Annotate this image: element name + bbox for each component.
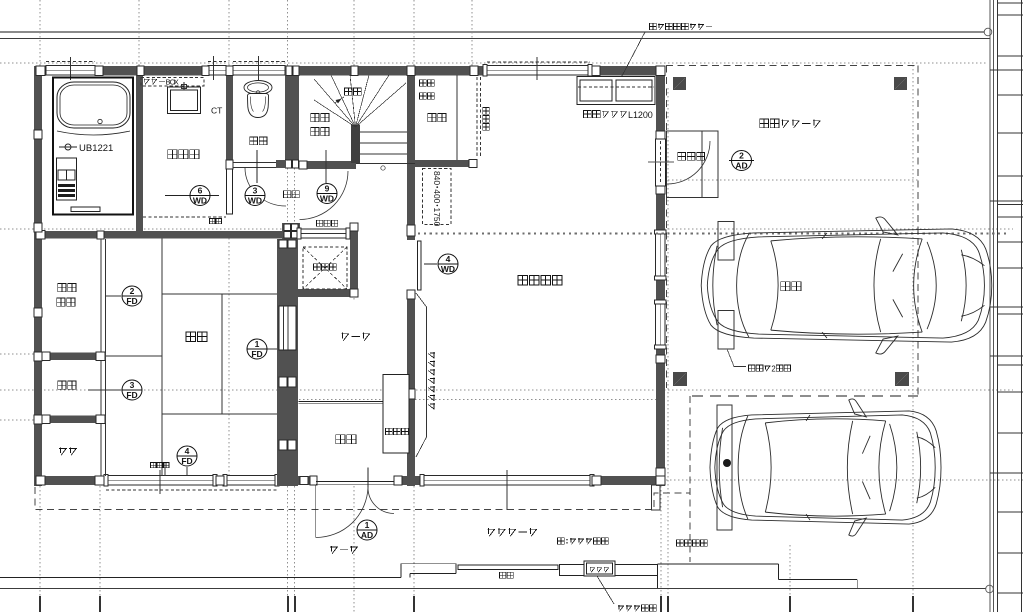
svg-text:UB1221: UB1221 xyxy=(79,143,113,154)
svg-text:WD: WD xyxy=(441,264,455,274)
svg-text:AD: AD xyxy=(361,530,373,540)
svg-text:3: 3 xyxy=(253,186,258,196)
svg-text:FD: FD xyxy=(251,349,262,359)
svg-text:4: 4 xyxy=(446,254,451,264)
svg-text:FD: FD xyxy=(126,296,137,306)
svg-text:AD: AD xyxy=(735,161,747,171)
svg-text:0: 0 xyxy=(432,222,442,227)
svg-text:2: 2 xyxy=(771,365,775,374)
svg-text:9: 9 xyxy=(325,184,330,194)
svg-text:0: 0 xyxy=(648,110,653,120)
svg-text:4: 4 xyxy=(185,446,190,456)
svg-text:FD: FD xyxy=(126,390,137,400)
svg-text:0: 0 xyxy=(432,180,442,185)
svg-text:0: 0 xyxy=(432,199,442,204)
svg-text:WD: WD xyxy=(193,196,207,206)
svg-text:FD: FD xyxy=(181,456,192,466)
svg-text:WD: WD xyxy=(320,194,334,204)
svg-text:3: 3 xyxy=(130,380,135,390)
svg-text:1: 1 xyxy=(255,339,260,349)
svg-text:6: 6 xyxy=(198,186,203,196)
svg-text:X: X xyxy=(174,78,179,87)
svg-text:1: 1 xyxy=(365,520,370,530)
svg-text:2: 2 xyxy=(130,286,135,296)
svg-text:CT: CT xyxy=(211,106,222,116)
svg-text:WD: WD xyxy=(248,196,262,206)
svg-text:2: 2 xyxy=(739,151,744,161)
